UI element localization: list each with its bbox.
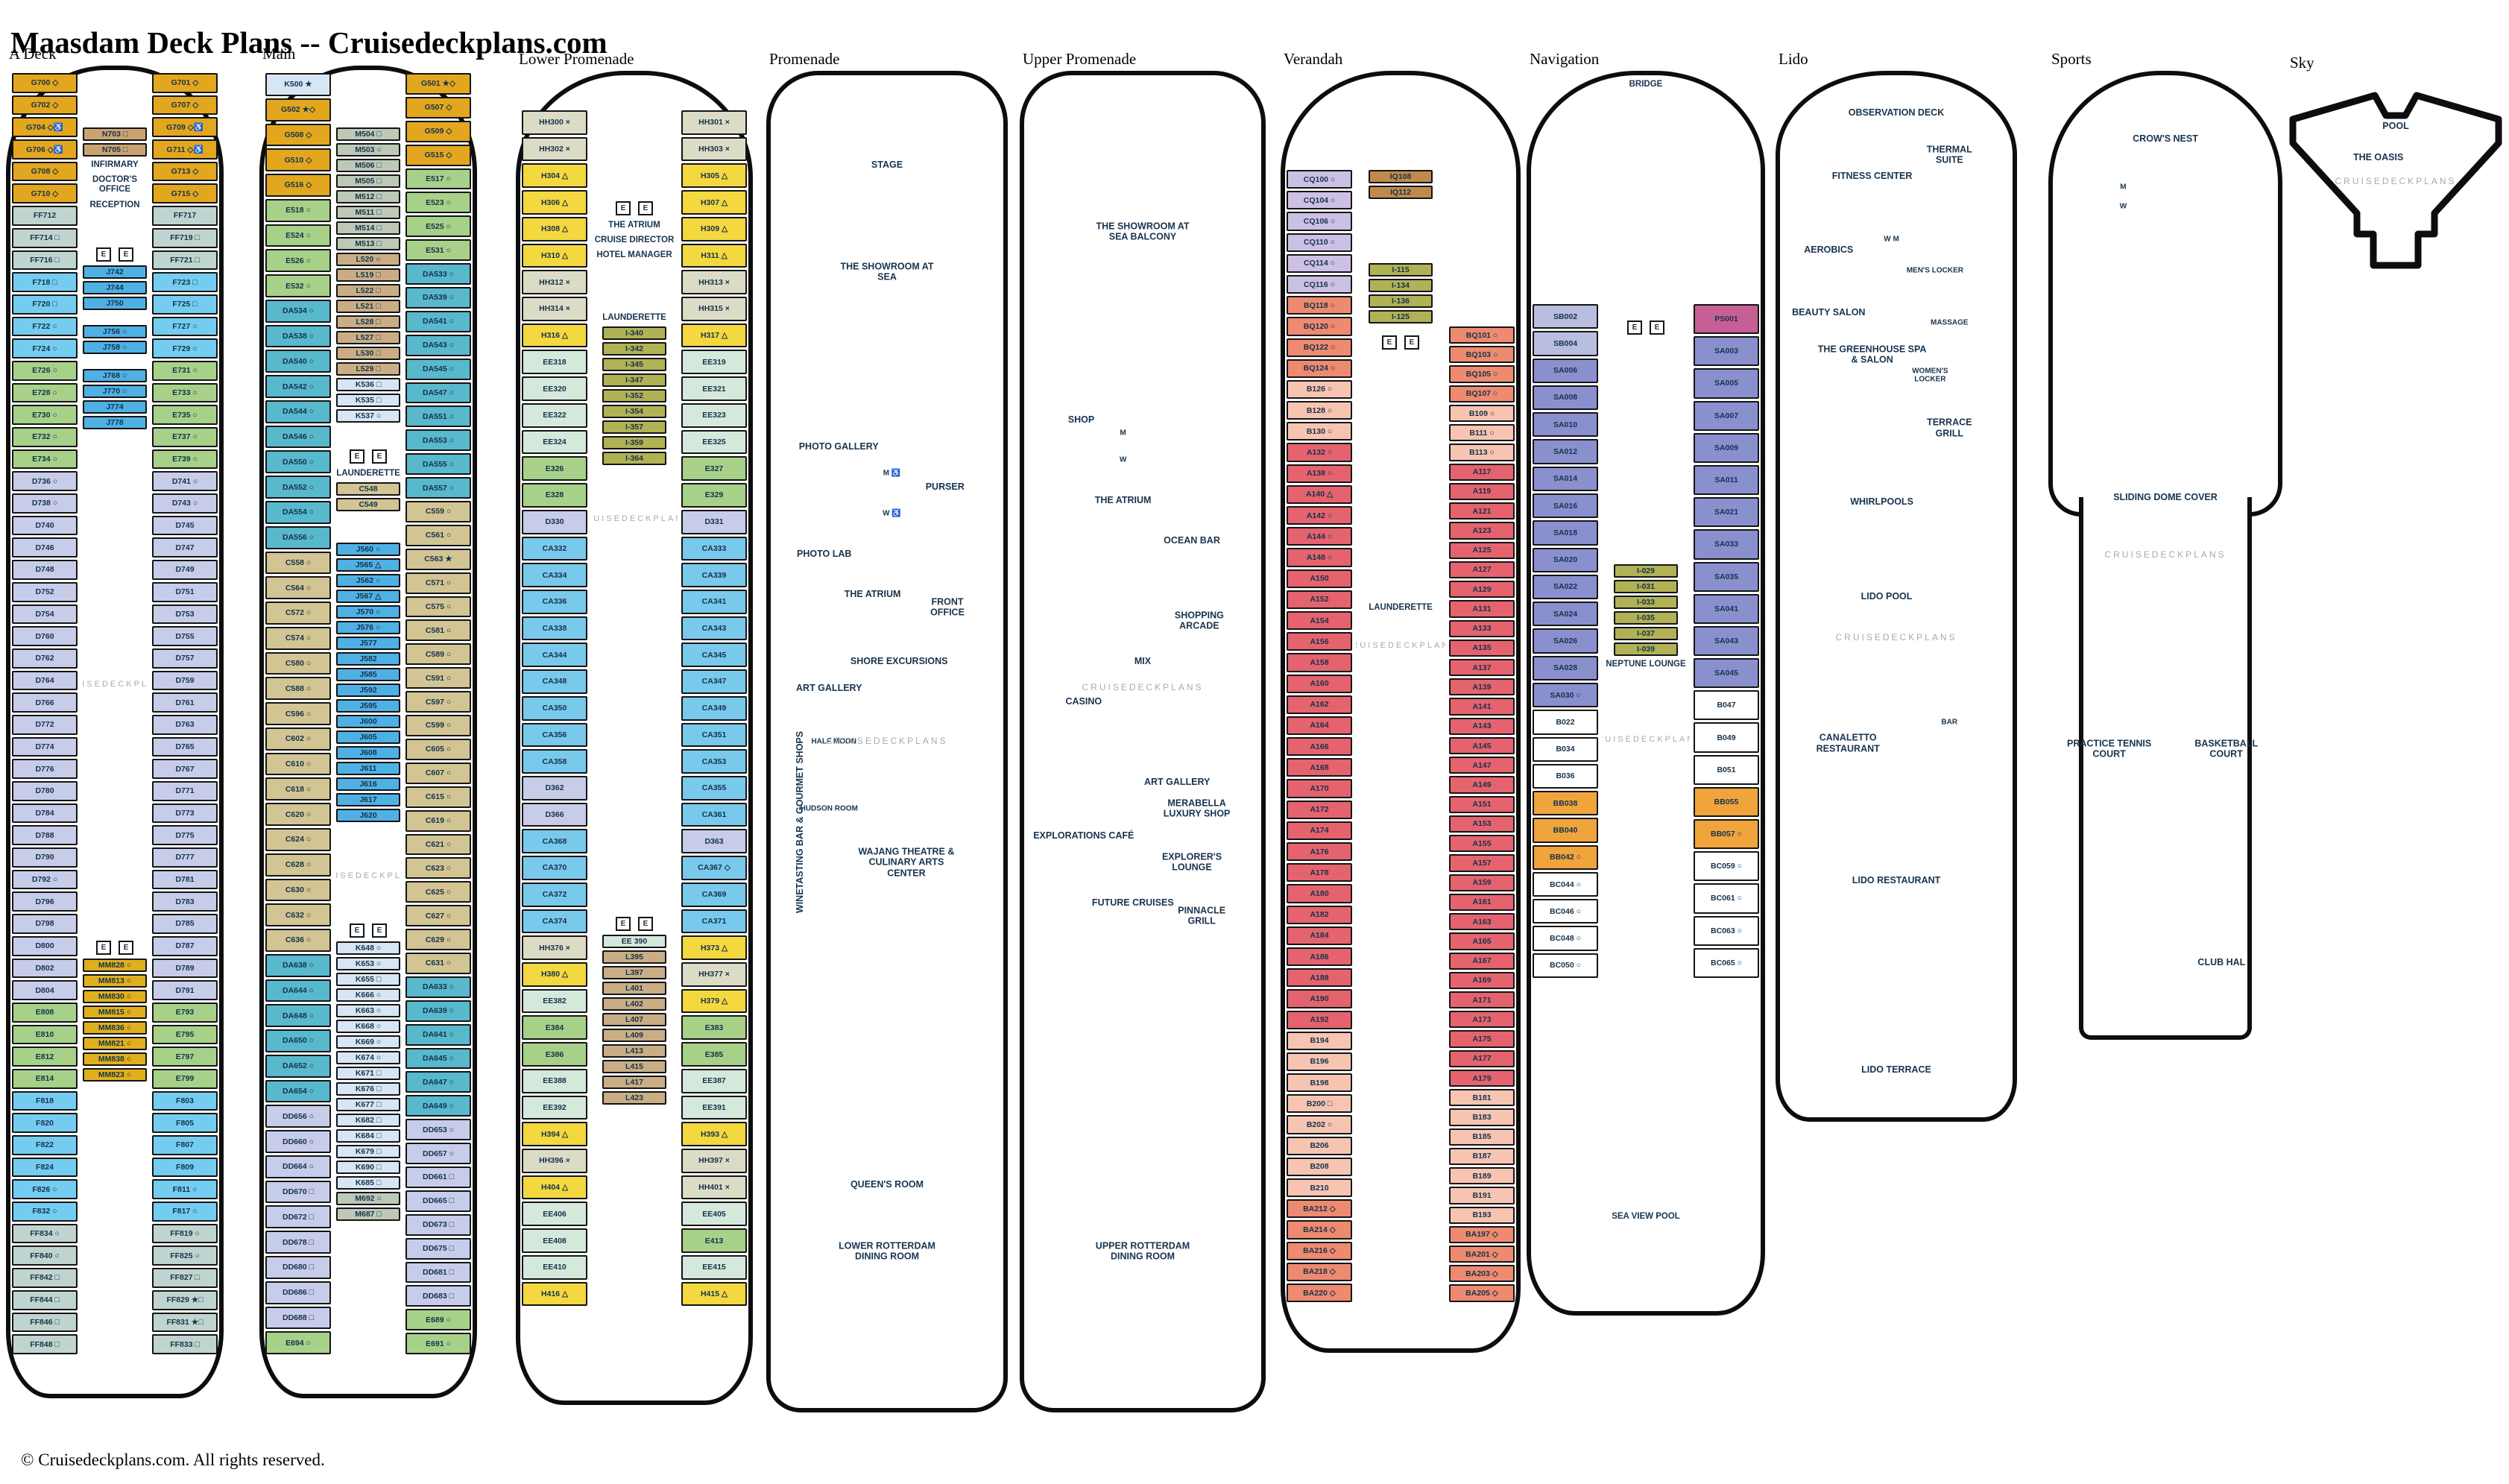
- cabin: SA020: [1533, 548, 1598, 572]
- cabin: DD681 □: [405, 1262, 471, 1283]
- cabin: J770 ○: [83, 385, 147, 398]
- cabin: A188: [1287, 968, 1352, 987]
- cabin: CA369: [681, 882, 747, 907]
- watermark: CRUISEDECKPLANS: [2335, 177, 2456, 187]
- cabin-column-center: BRIDGEEEI-029I-031I-033I-035I-037I-039NE…: [1602, 78, 1690, 1308]
- cabin: G509 ◇: [405, 121, 471, 142]
- cabin: SA006: [1533, 359, 1598, 383]
- elevator-icon: E: [96, 247, 111, 262]
- cabin-columns: K500 ★G502 ★◇G508 ◇G510 ◇G516 ◇E518 ○E52…: [265, 73, 471, 1391]
- cabin: E739 ○: [152, 449, 218, 470]
- cabin: G707 ◇: [152, 95, 218, 116]
- cabin: A176: [1287, 842, 1352, 861]
- cabin: M514 □: [336, 221, 400, 235]
- watermark: CRUISEDECKPLANS: [591, 514, 678, 523]
- cabin: CQ114 ○: [1287, 254, 1352, 273]
- cabin: A147: [1449, 757, 1515, 774]
- cabin: D773: [152, 803, 218, 824]
- cabin: SA041: [1694, 594, 1759, 624]
- cabin: A163: [1449, 913, 1515, 930]
- cabin: J595: [336, 699, 400, 713]
- cabin: CA368: [522, 829, 587, 853]
- venue-label-merabella-luxury-shop: MERABELLA LUXURY SHOP: [1162, 798, 1231, 820]
- cabin: L520 ○: [336, 253, 400, 266]
- cabin: J750: [83, 297, 147, 310]
- cabin: F724 ○: [12, 338, 78, 359]
- cabin: DA551 ○: [405, 405, 471, 427]
- deck-a-deck: G700 ◇G702 ◇G704 ◇♿G706 ◇♿G708 ◇G710 ◇FF…: [6, 66, 224, 1398]
- cabin: G502 ★◇: [265, 98, 331, 121]
- cabin: HH303 ×: [681, 137, 747, 162]
- cabin: A179: [1449, 1070, 1515, 1087]
- cabin: J774: [83, 400, 147, 414]
- elevator-icon: EE: [96, 247, 133, 262]
- cabin: A169: [1449, 972, 1515, 989]
- elevator-icon: EE: [616, 917, 653, 931]
- elevator-icon: EE: [350, 449, 387, 464]
- cabin: A184: [1287, 926, 1352, 945]
- cabin: F822: [12, 1135, 78, 1155]
- venue-label: INFIRMARY: [91, 160, 138, 170]
- cabin: J577: [336, 637, 400, 650]
- deck-lower-promenade: HH300 ×HH302 ×H304 △H306 △H308 △H310 △HH…: [516, 71, 753, 1405]
- cabin-column-starboard: PS001SA003SA005SA007SA009SA011SA021SA033…: [1694, 78, 1759, 1308]
- cabin: E793: [152, 1003, 218, 1023]
- page-title: Maasdam Deck Plans -- Cruisedeckplans.co…: [10, 25, 607, 60]
- cabin: CA348: [522, 669, 587, 694]
- cabin: MM813 ○: [83, 974, 147, 988]
- cabin: J768 ○: [83, 369, 147, 382]
- cabin: D745: [152, 516, 218, 536]
- cabin: K669 ○: [336, 1035, 400, 1049]
- cabin: G704 ◇♿: [12, 117, 78, 137]
- cabin: EE382: [522, 989, 587, 1014]
- cabin: D749: [152, 560, 218, 580]
- cabin: M512 □: [336, 190, 400, 203]
- cabin: A167: [1449, 953, 1515, 970]
- cabin: D802: [12, 959, 78, 979]
- cabin: A158: [1287, 653, 1352, 672]
- cabin: A162: [1287, 695, 1352, 714]
- cabin: M511 □: [336, 206, 400, 219]
- cabin: DD661 □: [405, 1166, 471, 1188]
- cabin: B200 □: [1287, 1094, 1352, 1113]
- cabin: I-033: [1614, 596, 1678, 609]
- cabin: E413: [681, 1228, 747, 1253]
- cabin: E735 ○: [152, 405, 218, 425]
- cabin: D754: [12, 604, 78, 625]
- cabin: SA024: [1533, 602, 1598, 626]
- cabin: B206: [1287, 1137, 1352, 1155]
- cabin: SA014: [1533, 467, 1598, 491]
- cabin-column-port: CQ100 ○CQ104 ○CQ106 ○CQ110 ○CQ114 ○CQ116…: [1287, 78, 1352, 1345]
- cabin: D764: [12, 671, 78, 691]
- cabin: CA333: [681, 537, 747, 561]
- cabin: MM828 ○: [83, 959, 147, 972]
- spacer: [1449, 78, 1515, 324]
- cabin: E808: [12, 1003, 78, 1023]
- cabin: SA043: [1694, 626, 1759, 656]
- cabin: A157: [1449, 854, 1515, 871]
- cabin: K655 □: [336, 973, 400, 986]
- cabin: G708 ◇: [12, 162, 78, 182]
- cabin: C548: [336, 482, 400, 496]
- cabin: I-125: [1369, 310, 1433, 323]
- cabin: B202 ○: [1287, 1115, 1352, 1134]
- cabin-columns: G700 ◇G702 ◇G704 ◇♿G706 ◇♿G708 ◇G710 ◇FF…: [12, 73, 218, 1391]
- cabin: K671 □: [336, 1067, 400, 1080]
- cabin: A129: [1449, 581, 1515, 598]
- cabin-column-center: M504 □M503 ○M506 □M505 □M512 □M511 □M514…: [335, 73, 402, 1391]
- cabin: M504 □: [336, 127, 400, 141]
- cabin: H415 △: [681, 1282, 747, 1307]
- cabin: C618 ○: [265, 777, 331, 801]
- cabin: B128 ○: [1287, 401, 1352, 420]
- cabin: E734 ○: [12, 449, 78, 470]
- cabin: BC046 ○: [1533, 899, 1598, 923]
- cabin: MM830 ○: [83, 990, 147, 1003]
- cabin: G501 ★◇: [405, 73, 471, 95]
- cabin: CA361: [681, 803, 747, 827]
- spacer: [522, 78, 587, 108]
- cabin: E732 ○: [12, 427, 78, 447]
- cabin: C561 ○: [405, 525, 471, 546]
- cabin: D767: [152, 759, 218, 779]
- cabin: J742: [83, 265, 147, 279]
- cabin: DD686 □: [265, 1281, 331, 1304]
- cabin: E728 ○: [12, 383, 78, 403]
- elevator-icon: E: [1627, 321, 1642, 335]
- cabin: DD675 □: [405, 1238, 471, 1260]
- cabin: D743 ○: [152, 493, 218, 514]
- cabin: K684 □: [336, 1129, 400, 1143]
- cabin: A121: [1449, 502, 1515, 520]
- cabin: L519 □: [336, 268, 400, 282]
- cabin: FF833 □: [152, 1334, 218, 1354]
- cabin-column-starboard: G701 ◇G707 ◇G709 ◇♿G711 ◇♿G713 ◇G715 ◇FF…: [152, 73, 218, 1391]
- cabin: D746: [12, 537, 78, 558]
- cabin: J744: [83, 281, 147, 294]
- cabin: J576 ○: [336, 621, 400, 634]
- cabin: B191: [1449, 1187, 1515, 1204]
- deck-sports: CROW'S NESTMWSLIDING DOME COVERCRUISEDEC…: [2048, 71, 2282, 1040]
- cabin: D761: [152, 692, 218, 713]
- cabin: CA332: [522, 537, 587, 561]
- cabin: B210: [1287, 1178, 1352, 1197]
- cabin: A159: [1449, 874, 1515, 891]
- cabin: C549: [336, 498, 400, 511]
- cabin: CA355: [681, 776, 747, 801]
- cabin: I-029: [1614, 564, 1678, 578]
- cabin: EE322: [522, 403, 587, 428]
- cabin: K677 □: [336, 1098, 400, 1111]
- cabin: D366: [522, 803, 587, 827]
- cabin: CA350: [522, 696, 587, 721]
- venue-label-m: M: [1120, 429, 1126, 438]
- cabin: SA035: [1694, 562, 1759, 592]
- venue-label: SEA VIEW POOL: [1612, 1212, 1680, 1222]
- cabin: HH302 ×: [522, 137, 587, 162]
- cabin: C597 ○: [405, 691, 471, 713]
- elevator-icon: E: [616, 201, 631, 215]
- cabin: A173: [1449, 1011, 1515, 1028]
- cabin: A182: [1287, 906, 1352, 924]
- cabin: D748: [12, 560, 78, 580]
- cabin: CQ110 ○: [1287, 233, 1352, 252]
- cabin: F817 ○: [152, 1202, 218, 1222]
- cabin: H393 △: [681, 1122, 747, 1146]
- cabin: DA647 ○: [405, 1071, 471, 1093]
- cabin: C588 ○: [265, 677, 331, 700]
- cabin: E733 ○: [152, 383, 218, 403]
- cabin: C627 ○: [405, 905, 471, 926]
- cabin: J565 △: [336, 558, 400, 572]
- cabin: H404 △: [522, 1175, 587, 1200]
- cabin: E812: [12, 1046, 78, 1067]
- watermark: CRUISEDECKPLANS: [826, 736, 947, 747]
- cabin: DA644 ○: [265, 979, 331, 1003]
- cabin: B181: [1449, 1089, 1515, 1106]
- cabin: HH401 ×: [681, 1175, 747, 1200]
- cabin: CA367 ◇: [681, 856, 747, 880]
- cabin: F809: [152, 1158, 218, 1178]
- watermark: CRUISEDECKPLANS: [2104, 550, 2226, 561]
- cabin: EE324: [522, 430, 587, 455]
- cabin: E810: [12, 1025, 78, 1045]
- cabin: H304 △: [522, 163, 587, 188]
- cabin: DA645 ○: [405, 1048, 471, 1070]
- venue-label-whirlpools: WHIRLPOOLS: [1850, 496, 1913, 507]
- deck-name-promenade: Promenade: [769, 50, 839, 69]
- venue-label-lido-terrace: LIDO TERRACE: [1861, 1064, 1931, 1074]
- cabin: DD665 □: [405, 1190, 471, 1212]
- venue-label: THE ATRIUM: [608, 221, 660, 230]
- cabin: A145: [1449, 737, 1515, 754]
- spacer: [1533, 980, 1598, 1308]
- cabin: G713 ◇: [152, 162, 218, 182]
- cabin: E525 ○: [405, 215, 471, 237]
- cabin: M503 ○: [336, 143, 400, 157]
- venue-label-photo-gallery: PHOTO GALLERY: [799, 441, 879, 452]
- venue-label-beauty-salon: BEAUTY SALON: [1792, 307, 1865, 318]
- cabin: FF846 □: [12, 1313, 78, 1333]
- cabin: CA370: [522, 856, 587, 880]
- cabin: K535 □: [336, 394, 400, 407]
- cabin: C629 ○: [405, 929, 471, 950]
- cabin: B194: [1287, 1032, 1352, 1050]
- venue-label-practice-tennis-court: PRACTICE TENNIS COURT: [2054, 739, 2165, 760]
- spacer: [681, 1308, 747, 1398]
- cabin: A161: [1449, 894, 1515, 911]
- venue-label-the-showroom-at-sea: THE SHOWROOM AT SEA: [831, 262, 943, 283]
- venue-label-queen-s-room: QUEEN'S ROOM: [850, 1179, 924, 1190]
- venue-label-basketball-court: BASKETBALL COURT: [2194, 739, 2258, 760]
- cabin: M513 □: [336, 237, 400, 250]
- cabin: H416 △: [522, 1282, 587, 1307]
- venue-label-canaletto-restaurant: CANALETTO RESTAURANT: [1792, 733, 1904, 754]
- cabin: J560 ○: [336, 543, 400, 556]
- venue-label-m-: M ♿: [883, 469, 901, 478]
- cabin: EE325: [681, 430, 747, 455]
- cabin: SA009: [1694, 433, 1759, 463]
- cabin: SA033: [1694, 529, 1759, 559]
- cabin: I-347: [602, 373, 666, 387]
- cabin: G702 ◇: [12, 95, 78, 116]
- cabin: BB040: [1533, 818, 1598, 842]
- cabin: DA533 ○: [405, 263, 471, 285]
- cabin: J592: [336, 683, 400, 697]
- cabin: BB057 ○: [1694, 819, 1759, 849]
- cabin: A139: [1449, 678, 1515, 695]
- cabin: F727 ○: [152, 317, 218, 337]
- cabin: A142 ○: [1287, 506, 1352, 525]
- cabin: C574 ○: [265, 627, 331, 650]
- cabin: D785: [152, 914, 218, 934]
- cabin: DD670 □: [265, 1181, 331, 1204]
- spacer: [1533, 78, 1598, 302]
- cabin: CA358: [522, 749, 587, 774]
- cabin: CA356: [522, 723, 587, 748]
- venue-label-the-oasis: THE OASIS: [2353, 152, 2403, 162]
- cabin: G700 ◇: [12, 73, 78, 93]
- cabin: BC059 ○: [1694, 851, 1759, 881]
- ship-hull: [1020, 71, 1266, 1412]
- venue-label-lido-pool: LIDO POOL: [1861, 591, 1913, 602]
- cabin: C558 ○: [265, 552, 331, 575]
- elevator-icon: EE: [350, 923, 387, 938]
- cabin: SA021: [1694, 497, 1759, 527]
- cabin: A152: [1287, 590, 1352, 609]
- venue-label-shop: SHOP: [1068, 414, 1094, 425]
- cabin: SA030 ○: [1533, 683, 1598, 707]
- elevator-icon: E: [638, 917, 653, 931]
- venue-label: LAUNDERETTE: [336, 469, 400, 479]
- cabin: D788: [12, 825, 78, 845]
- cabin: SA016: [1533, 493, 1598, 518]
- cabin: G711 ◇♿: [152, 139, 218, 160]
- venue-label-w: W: [2120, 202, 2127, 211]
- cabin: I-354: [602, 405, 666, 418]
- cabin: E691 ○: [405, 1333, 471, 1354]
- cabin: D796: [12, 891, 78, 912]
- venue-label-w-m: W M: [1884, 235, 1899, 244]
- cabin: CQ100 ○: [1287, 170, 1352, 189]
- venue-label: HOTEL MANAGER: [596, 250, 672, 260]
- cabin: H306 △: [522, 190, 587, 215]
- cabin: K500 ★: [265, 73, 331, 96]
- cabin: BC065 ○: [1694, 948, 1759, 978]
- cabin: EE321: [681, 376, 747, 401]
- cabin: D775: [152, 825, 218, 845]
- cabin: FF714 □: [12, 228, 78, 248]
- cabin: D762: [12, 648, 78, 669]
- cabin: F820: [12, 1113, 78, 1133]
- cabin: SA018: [1533, 520, 1598, 545]
- cabin: E524 ○: [265, 224, 331, 247]
- deck-main: K500 ★G502 ★◇G508 ◇G510 ◇G516 ◇E518 ○E52…: [259, 66, 477, 1398]
- spacer: [12, 1357, 78, 1391]
- cabin: F720 □: [12, 294, 78, 315]
- cabin: A131: [1449, 600, 1515, 617]
- cabin: J605: [336, 730, 400, 744]
- cabin-column-port: SB002SB004SA006SA008SA010SA012SA014SA016…: [1533, 78, 1598, 1308]
- cabin: DD683 □: [405, 1285, 471, 1307]
- cabin: I-364: [602, 452, 666, 465]
- cabin-column-starboard: G501 ★◇G507 ◇G509 ◇G515 ◇E517 ○E523 ○E52…: [405, 73, 471, 1391]
- cabin: M687 □: [336, 1207, 400, 1221]
- cabin: A190: [1287, 989, 1352, 1008]
- cabin: DA555 ○: [405, 453, 471, 475]
- cabin: G701 ◇: [152, 73, 218, 93]
- venue-label-the-atrium: THE ATRIUM: [1095, 495, 1152, 505]
- cabin: BB055: [1694, 787, 1759, 817]
- cabin: CA338: [522, 616, 587, 641]
- cabin: A141: [1449, 698, 1515, 715]
- cabin: J620: [336, 809, 400, 822]
- cabin: J758 ○: [83, 341, 147, 354]
- cabin: DA648 ○: [265, 1004, 331, 1027]
- cabin: J570 ○: [336, 605, 400, 619]
- elevator-icon: E: [616, 917, 631, 931]
- cabin: BC048 ○: [1533, 926, 1598, 950]
- cabin: DA547 ○: [405, 382, 471, 404]
- cabin: SA022: [1533, 575, 1598, 599]
- cabin: BC061 ○: [1694, 883, 1759, 913]
- cabin: IQ112: [1369, 186, 1433, 199]
- cabin: FF825 ○: [152, 1245, 218, 1266]
- cabin: FF719 □: [152, 228, 218, 248]
- cabin: D791: [152, 980, 218, 1000]
- deck-name-a-deck: A Deck: [9, 45, 57, 63]
- cabin: H311 △: [681, 244, 747, 268]
- venue-label-massage: MASSAGE: [1931, 319, 1969, 328]
- venue-label: BRIDGE: [1629, 80, 1663, 89]
- cabin: HH315 ×: [681, 297, 747, 321]
- cabin: A150: [1287, 569, 1352, 588]
- cabin: I-039: [1614, 642, 1678, 656]
- cabin: DD680 □: [265, 1256, 331, 1279]
- watermark: CRUISEDECKPLANS: [81, 680, 148, 689]
- cabin: DA552 ○: [265, 476, 331, 499]
- cabin: D777: [152, 847, 218, 868]
- cabin: D771: [152, 781, 218, 801]
- cabin: DD672 □: [265, 1205, 331, 1228]
- cabin: H308 △: [522, 217, 587, 241]
- cabin: I-037: [1614, 627, 1678, 640]
- cabin: DD678 □: [265, 1231, 331, 1254]
- cabin: A144 ○: [1287, 527, 1352, 546]
- elevator-icon: E: [350, 923, 364, 938]
- deck-promenade: STAGETHE SHOWROOM AT SEAPHOTO GALLERYPUR…: [766, 71, 1008, 1412]
- cabin: E799: [152, 1069, 218, 1089]
- venue-label-stage: STAGE: [871, 160, 903, 170]
- cabin: FF834 ○: [12, 1224, 78, 1244]
- cabin: DD673 □: [405, 1214, 471, 1236]
- cabin-column-port: K500 ★G502 ★◇G508 ◇G510 ◇G516 ◇E518 ○E52…: [265, 73, 331, 1391]
- cabin: CA339: [681, 563, 747, 587]
- cabin: DA557 ○: [405, 477, 471, 499]
- cabin: B196: [1287, 1052, 1352, 1071]
- cabin: L395: [602, 950, 666, 964]
- cabin: C575 ○: [405, 596, 471, 618]
- cabin: F832 ○: [12, 1202, 78, 1222]
- cabin: BC063 ○: [1694, 916, 1759, 946]
- cabin: DD653 ○: [405, 1119, 471, 1140]
- cabin-column-port: G700 ◇G702 ◇G704 ◇♿G706 ◇♿G708 ◇G710 ◇FF…: [12, 73, 78, 1391]
- cabin: B047: [1694, 690, 1759, 720]
- cabin: C572 ○: [265, 602, 331, 625]
- cabin: CA341: [681, 590, 747, 614]
